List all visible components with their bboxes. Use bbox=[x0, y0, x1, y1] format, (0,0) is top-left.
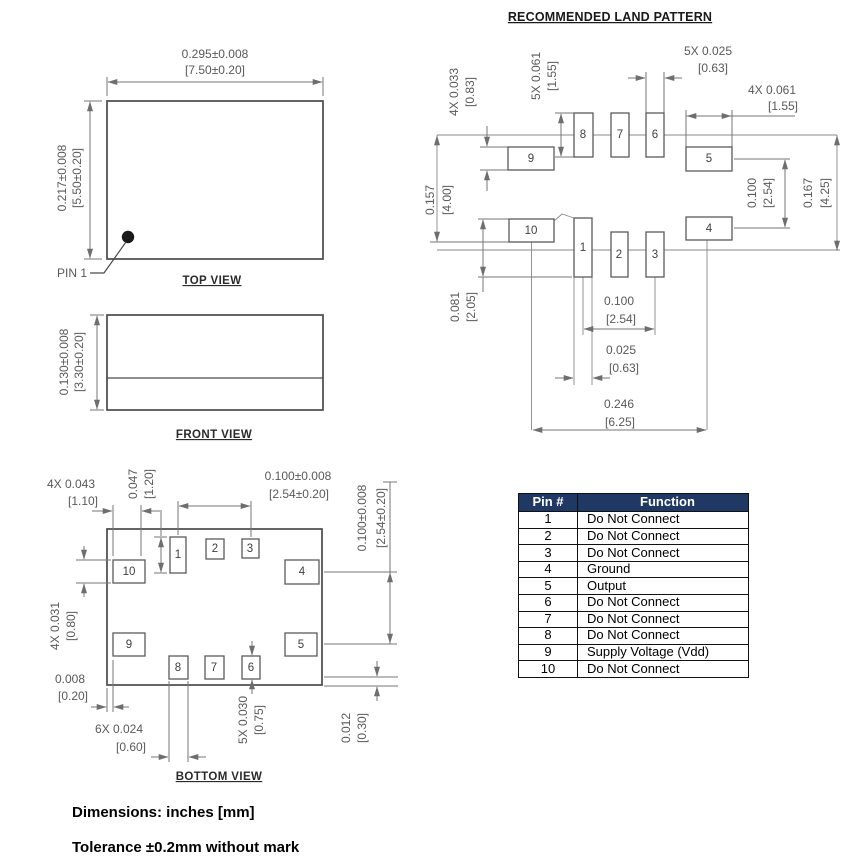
top-view-label: TOP VIEW bbox=[182, 275, 241, 287]
pin-number: 2 bbox=[519, 528, 578, 545]
land-pad-6-number: 6 bbox=[652, 129, 658, 141]
dim-right-pitch-in: 0.100 bbox=[745, 178, 759, 208]
pad-6-number: 6 bbox=[248, 662, 254, 674]
pin-function: Do Not Connect bbox=[578, 611, 749, 628]
land-pad-9-number: 9 bbox=[528, 153, 534, 165]
pin-column-header: Pin # bbox=[519, 494, 578, 512]
front-view-drawing: 0.130±0.008 [3.30±0.20] FRONT VIEW bbox=[57, 315, 323, 441]
land-pad-5-number: 5 bbox=[706, 153, 712, 165]
pad-10-number: 10 bbox=[123, 566, 136, 578]
front-view-label: FRONT VIEW bbox=[176, 429, 252, 441]
land-pad-10-number: 10 bbox=[525, 225, 538, 237]
pad-5-number: 5 bbox=[298, 639, 304, 651]
pin-number: 3 bbox=[519, 545, 578, 562]
land-pad-7-number: 7 bbox=[617, 129, 623, 141]
table-row: 1Do Not Connect bbox=[519, 512, 749, 529]
package-outline-top bbox=[107, 101, 323, 259]
table-header-row: Pin # Function bbox=[519, 494, 749, 512]
table-row: 9Supply Voltage (Vdd) bbox=[519, 644, 749, 661]
table-row: 3Do Not Connect bbox=[519, 545, 749, 562]
dim-horiz-pad-height-mm: [0.83] bbox=[463, 77, 477, 107]
pin-number: 10 bbox=[519, 661, 578, 678]
dim-pitch-top-in: 0.100±0.008 bbox=[265, 469, 332, 483]
top-width-inches: 0.295±0.008 bbox=[182, 47, 249, 61]
pin-number: 4 bbox=[519, 561, 578, 578]
pin-function: Do Not Connect bbox=[578, 528, 749, 545]
dim-bottom-pitch-mm: [2.54] bbox=[606, 312, 636, 326]
dim-small-pad-height-mm: [0.75] bbox=[252, 705, 266, 735]
bottom-view-label: BOTTOM VIEW bbox=[176, 771, 263, 783]
dim-vert-pad-width-in: 5X 0.025 bbox=[684, 44, 732, 58]
dim-vert-pad-width-mm: [0.63] bbox=[698, 61, 728, 75]
pin-function-table: Pin # Function 1Do Not Connect 2Do Not C… bbox=[518, 493, 749, 678]
pin-function: Do Not Connect bbox=[578, 628, 749, 645]
dim-right-span-mm: [4.25] bbox=[818, 178, 832, 208]
land-pad-2-number: 2 bbox=[616, 249, 622, 261]
pad-4-number: 4 bbox=[299, 566, 306, 578]
pin1-label: PIN 1 bbox=[57, 266, 87, 280]
dim-pitch-right-in: 0.100±0.008 bbox=[355, 484, 369, 551]
land-pad-1-number: 1 bbox=[580, 242, 586, 254]
pin-number: 6 bbox=[519, 594, 578, 611]
table-row: 5Output bbox=[519, 578, 749, 595]
dim-horiz-pad-width-mm: [1.55] bbox=[768, 99, 798, 113]
pin-function: Do Not Connect bbox=[578, 661, 749, 678]
land-pad-8-number: 8 bbox=[580, 129, 586, 141]
dim-corner-pad-width-mm: [1.10] bbox=[68, 494, 98, 508]
dim-right-span-in: 0.167 bbox=[801, 178, 815, 208]
pad-2-number: 2 bbox=[212, 543, 218, 555]
dim-pitch-right-mm: [2.54±0.20] bbox=[374, 488, 388, 548]
land-pattern-dimension-lines bbox=[430, 72, 837, 430]
dim-bottom-gap-in: 0.012 bbox=[339, 713, 353, 743]
dim-edge-gap-mm: [0.20] bbox=[58, 689, 88, 703]
front-height-inches: 0.130±0.008 bbox=[57, 328, 71, 395]
dim-pad1-width-in: 0.025 bbox=[606, 343, 636, 357]
function-column-header: Function bbox=[578, 494, 749, 512]
top-width-mm: [7.50±0.20] bbox=[185, 63, 245, 77]
pad-3-number: 3 bbox=[247, 543, 253, 555]
dim-vert-pad-height-mm: [1.55] bbox=[545, 61, 559, 91]
dim-corner-pad-height-mm: [0.80] bbox=[64, 611, 78, 641]
pin-number: 5 bbox=[519, 578, 578, 595]
dim-vert-pad-height-in: 5X 0.061 bbox=[529, 52, 543, 100]
dim-right-pitch-mm: [2.54] bbox=[761, 178, 775, 208]
table-row: 8Do Not Connect bbox=[519, 628, 749, 645]
pin-function: Output bbox=[578, 578, 749, 595]
pin-function: Do Not Connect bbox=[578, 512, 749, 529]
land-pattern-drawing: RECOMMENDED LAND PATTERN bbox=[423, 10, 840, 430]
pin-function: Ground bbox=[578, 561, 749, 578]
datasheet-page: { "top_view": { "label": "TOP VIEW", "pi… bbox=[0, 0, 850, 862]
dim-horiz-pad-width-in: 4X 0.061 bbox=[748, 83, 796, 97]
land-pattern-title: RECOMMENDED LAND PATTERN bbox=[508, 10, 712, 24]
pin-function: Do Not Connect bbox=[578, 594, 749, 611]
dim-edge-gap-in: 0.008 bbox=[55, 672, 85, 686]
units-note: Dimensions: inches [mm] bbox=[72, 804, 255, 821]
land-pattern-construction-lines bbox=[437, 135, 840, 430]
top-height-inches: 0.217±0.008 bbox=[55, 144, 69, 211]
pad-9-number: 9 bbox=[126, 639, 132, 651]
table-row: 10Do Not Connect bbox=[519, 661, 749, 678]
front-height-mm: [3.30±0.20] bbox=[72, 332, 86, 392]
pad-1-number: 1 bbox=[175, 549, 181, 561]
pad-7-number: 7 bbox=[211, 662, 217, 674]
dim-bottom-gap-mm: [0.30] bbox=[355, 713, 369, 743]
top-height-mm: [5.50±0.20] bbox=[70, 148, 84, 208]
land-pad-3-number: 3 bbox=[652, 249, 658, 261]
dim-left-span-mm: [4.00] bbox=[440, 185, 454, 215]
pin-function: Supply Voltage (Vdd) bbox=[578, 644, 749, 661]
dim-pad1-height-in: 0.047 bbox=[126, 469, 140, 499]
dim-pad1-width-mm: [0.63] bbox=[609, 361, 639, 375]
pin-number: 7 bbox=[519, 611, 578, 628]
dim-bottom-pitch-in: 0.100 bbox=[604, 294, 634, 308]
table-row: 4Ground bbox=[519, 561, 749, 578]
dim-corner-pad-height-in: 4X 0.031 bbox=[48, 602, 62, 650]
dim-pad1-height-mm: [2.05] bbox=[464, 292, 478, 322]
land-pad-4-number: 4 bbox=[706, 223, 713, 235]
table-row: 2Do Not Connect bbox=[519, 528, 749, 545]
dim-horiz-pad-height-in: 4X 0.033 bbox=[447, 68, 461, 116]
dim-row-width-in: 0.246 bbox=[604, 397, 634, 411]
dim-corner-pad-width-in: 4X 0.043 bbox=[47, 477, 95, 491]
table-row: 7Do Not Connect bbox=[519, 611, 749, 628]
dim-small-pad-height-in: 5X 0.030 bbox=[236, 696, 250, 744]
pad-8-number: 8 bbox=[175, 662, 181, 674]
bottom-view-drawing: 1 2 3 10 4 9 5 8 7 6 4X 0.043 [1.10] 0.0… bbox=[47, 469, 398, 783]
dim-pad1-height-mm: [1.20] bbox=[142, 469, 156, 499]
pin-number: 1 bbox=[519, 512, 578, 529]
dim-left-span-in: 0.157 bbox=[423, 185, 437, 215]
table-row: 6Do Not Connect bbox=[519, 594, 749, 611]
pin1-marker-dot bbox=[122, 231, 134, 243]
pin-function: Do Not Connect bbox=[578, 545, 749, 562]
dim-row-width-mm: [6.25] bbox=[605, 415, 635, 429]
dim-small-pad-width-mm: [0.60] bbox=[116, 740, 146, 754]
dim-small-pad-width-in: 6X 0.024 bbox=[95, 722, 143, 736]
pin-number: 9 bbox=[519, 644, 578, 661]
pin-number: 8 bbox=[519, 628, 578, 645]
tolerance-note: Tolerance ±0.2mm without mark bbox=[72, 839, 299, 856]
land-pattern-pads: 8 7 6 9 5 10 4 1 2 3 bbox=[508, 113, 732, 277]
top-view-drawing: 0.295±0.008 [7.50±0.20] 0.217±0.008 [5.5… bbox=[55, 47, 323, 287]
package-outline-front bbox=[107, 315, 323, 410]
dim-pitch-top-mm: [2.54±0.20] bbox=[269, 487, 329, 501]
engineering-drawing: 0.295±0.008 [7.50±0.20] 0.217±0.008 [5.5… bbox=[0, 0, 850, 862]
dim-pad1-height-in: 0.081 bbox=[448, 292, 462, 322]
